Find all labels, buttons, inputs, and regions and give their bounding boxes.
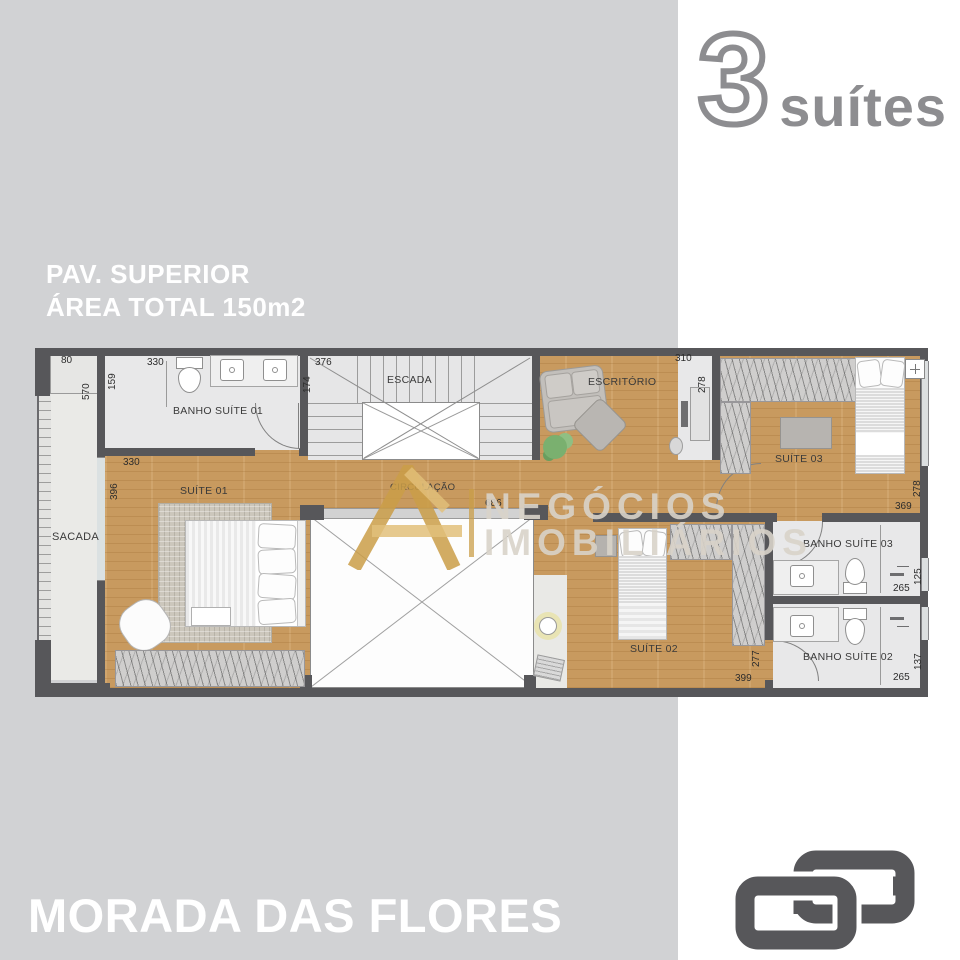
dim-277: 277: [751, 650, 762, 667]
office-desk: [690, 387, 710, 441]
suite1-wardrobe: [115, 650, 305, 687]
wall-banho1-bottom-post: [299, 448, 308, 456]
room-label-banho1: BANHO SUÍTE 01: [173, 405, 263, 417]
suite3-nightstand: [905, 359, 925, 379]
dim-310: 310: [675, 353, 692, 364]
banho1-sink-2: [263, 359, 287, 381]
banho3-sink: [790, 565, 814, 587]
room-label-suite1: SUÍTE 01: [180, 485, 228, 497]
room-label-suite2: SUÍTE 02: [630, 643, 678, 655]
floor-header: PAV. SUPERIOR ÁREA TOTAL 150m2: [46, 258, 306, 324]
suite3-bed: [855, 357, 905, 474]
agency-logo-icon: [733, 850, 918, 950]
dim-265-banho3: 265: [893, 583, 910, 594]
banho3-shower-glass: [880, 525, 881, 593]
floor-name: PAV. SUPERIOR: [46, 258, 306, 291]
banho1-door-leaf: [298, 403, 299, 448]
suite3-closet-top: [720, 358, 868, 402]
dim-369: 369: [895, 501, 912, 512]
banho1-sink-1: [220, 359, 244, 381]
wall-suite3-bottom-right: [822, 513, 928, 522]
wall-suite2-banho-lower: [765, 680, 773, 688]
watermark-divider: [469, 489, 474, 557]
room-label-banho2: BANHO SUÍTE 02: [803, 651, 893, 663]
banho1-shower-glass: [166, 361, 167, 407]
dim-174: 174: [302, 376, 313, 393]
banho3-toilet-bowl: [845, 558, 865, 585]
wall-banho-divider: [765, 596, 928, 604]
banho2-sink: [790, 615, 814, 637]
poster-canvas: 3 suítes PAV. SUPERIOR ÁREA TOTAL 150m2: [0, 0, 960, 960]
room-label-sacada: SACADA: [52, 531, 99, 543]
dim-376: 376: [315, 357, 332, 368]
wall-bottom: [97, 688, 928, 697]
suites-count: 3: [698, 28, 769, 133]
room-label-suite3: SUÍTE 03: [775, 453, 823, 465]
wall-stair-office: [532, 348, 540, 460]
wall-banho1-bottom: [97, 448, 255, 456]
watermark-line2: IMOBILIÁRIOS: [484, 522, 813, 564]
banho2-shower-glass: [880, 607, 881, 685]
dim-278-suite3: 278: [912, 480, 923, 497]
project-title: MORADA DAS FLORES: [28, 888, 562, 943]
wall-top: [48, 348, 928, 356]
dim-570: 570: [81, 383, 92, 400]
balcony-railing: [37, 392, 51, 642]
dim-159: 159: [107, 373, 118, 390]
banho2-window: [921, 607, 929, 640]
void-post-left: [300, 505, 324, 520]
banho2-shower-fixture: [890, 617, 904, 620]
office-monitor: [681, 401, 688, 427]
watermark-monogram-icon: [342, 465, 472, 570]
floor-area: ÁREA TOTAL 150m2: [46, 291, 306, 324]
wall-office-suite3: [712, 348, 720, 460]
suite1-bench: [191, 607, 231, 626]
dim-125: 125: [913, 568, 924, 585]
dim-278-office: 278: [697, 376, 708, 393]
suite3-closet-left: [720, 402, 751, 474]
room-label-escada: ESCADA: [387, 374, 432, 386]
dim-396: 396: [109, 483, 120, 500]
dim-265-banho2: 265: [893, 672, 910, 683]
office-chair: [669, 437, 683, 455]
suites-branding: 3 suítes: [698, 28, 947, 133]
suite3-bench: [780, 417, 832, 449]
wall-banho1-stair: [300, 348, 308, 456]
dim-330-banho1: 330: [147, 357, 164, 368]
balcony-glass-door: [97, 457, 105, 581]
suite2-desk-lamp: [539, 617, 557, 635]
floor-plan: BANHO SUÍTE 01 ESCADA ESCRITÓRIO SUÍTE 0…: [35, 345, 928, 697]
room-label-banho3: BANHO SUÍTE 03: [803, 538, 893, 550]
banho3-shower-fixture: [890, 573, 904, 576]
dim-399: 399: [735, 673, 752, 684]
dim-80: 80: [61, 355, 72, 366]
room-label-escritorio: ESCRITÓRIO: [588, 376, 656, 388]
stair-direction-lines: [308, 356, 532, 460]
dim-137: 137: [913, 653, 924, 670]
dim-330-suite1: 330: [123, 457, 140, 468]
suites-label: suítes: [779, 80, 947, 133]
wall-balcony-top-block: [35, 348, 50, 396]
void-post-bottom-right: [524, 675, 536, 689]
office-plant: [543, 435, 567, 459]
